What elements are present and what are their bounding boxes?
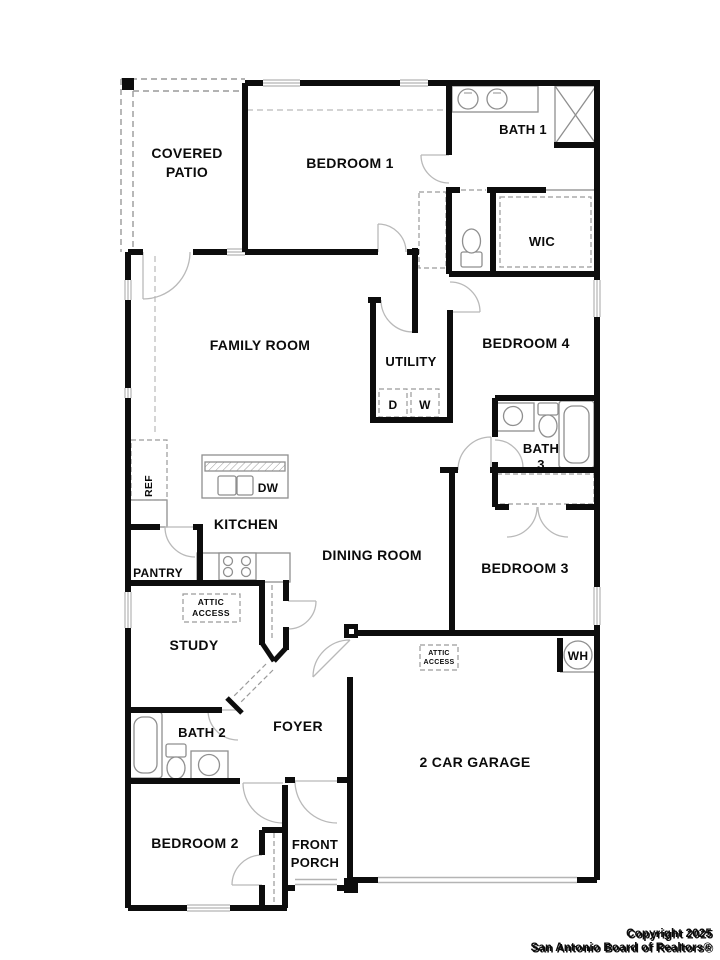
bathtub-bath3 [559,401,594,468]
room-label-bedroom1: BEDROOM 1 [306,155,394,171]
room-label-wic: WIC [529,234,555,249]
wic-shelf [500,197,591,267]
door-bedroom2-closet [232,855,262,885]
copyright-notice: Copyright 2025 San Antonio Board of Real… [531,928,714,956]
stove [219,553,256,580]
bath3-sink [504,407,523,426]
toilet-bath3 [538,403,558,437]
bath2-sink [199,755,220,776]
copyright-line1: Copyright 2025 [626,928,712,940]
hall-nook-dashed [419,192,446,268]
porch-edge-opening [295,880,337,885]
bedroom3-closet-doors [507,507,568,537]
room-label-study: STUDY [170,637,219,653]
room-label-bath1: BATH 1 [499,122,547,137]
toilet-owner [461,229,482,267]
label-attic-access-garage-line1: ATTIC [428,650,450,657]
room-label-covered-patio-line1: COVERED [151,145,222,161]
room-label-garage: 2 CAR GARAGE [420,754,531,770]
room-label-bath3-line1: BATH [523,441,559,456]
walls [128,83,600,908]
room-label-bedroom4: BEDROOM 4 [482,335,570,351]
room-label-bedroom2: BEDROOM 2 [151,835,239,851]
room-label-bath3-line2: 3 [537,457,545,472]
toilet-bath2 [166,744,186,779]
door-patio [143,252,190,299]
attic-access-garage-box [420,645,458,670]
door-bedroom4 [450,282,480,312]
door-bedroom3 [458,437,491,470]
door-bedroom2 [243,783,283,823]
door-bedroom1 [378,224,406,252]
room-label-family-room: FAMILY ROOM [210,337,311,353]
foyer-angled-opening [232,664,273,704]
room-label-foyer: FOYER [273,718,323,734]
kitchen-counter-left [129,500,167,527]
bedroom3-closet-shelf [497,474,594,504]
room-label-front-porch-line1: FRONT [292,837,338,852]
room-label-bedroom3: BEDROOM 3 [481,560,569,576]
bath1-sink-left [458,89,478,109]
room-label-kitchen: KITCHEN [214,516,278,532]
room-label-utility: UTILITY [385,354,436,369]
bath1-sink-right [487,89,507,109]
label-attic-access-study-line1: ATTIC [198,597,224,607]
door-bath1 [421,155,449,183]
label-water-heater: WH [568,649,589,663]
room-label-covered-patio-line2: PATIO [166,164,208,180]
label-refrigerator: REF [143,475,155,497]
garage-door-opening [378,878,577,883]
label-attic-access-garage-line2: ACCESS [424,659,455,666]
windows [123,78,602,913]
island-bar-top [205,462,285,471]
bathtub-bath2 [129,712,162,778]
label-washer: W [419,398,431,412]
door-pantry [165,527,195,557]
room-label-bath2: BATH 2 [178,725,226,740]
floor-plan-drawing: COVERED PATIO BEDROOM 1 BATH 1 WIC FAMIL… [0,0,720,960]
door-utility [381,300,413,332]
copyright-line2: San Antonio Board of Realtors® [531,942,713,954]
label-attic-access-study-line2: ACCESS [192,608,230,618]
island-sink-right [237,476,253,495]
room-label-front-porch-line2: PORCH [291,855,339,870]
door-study-closet [288,601,316,629]
label-dryer: D [389,398,398,412]
door-front [295,781,337,823]
room-label-dining-room: DINING ROOM [322,547,422,563]
door-bath3 [495,440,523,468]
label-dishwasher: DW [258,481,279,495]
shower [555,86,596,144]
room-label-pantry: PANTRY [133,566,183,580]
door-garage-entry [313,640,350,677]
floor-plan-page: COVERED PATIO BEDROOM 1 BATH 1 WIC FAMIL… [0,0,720,960]
island-sink-left [218,476,236,495]
